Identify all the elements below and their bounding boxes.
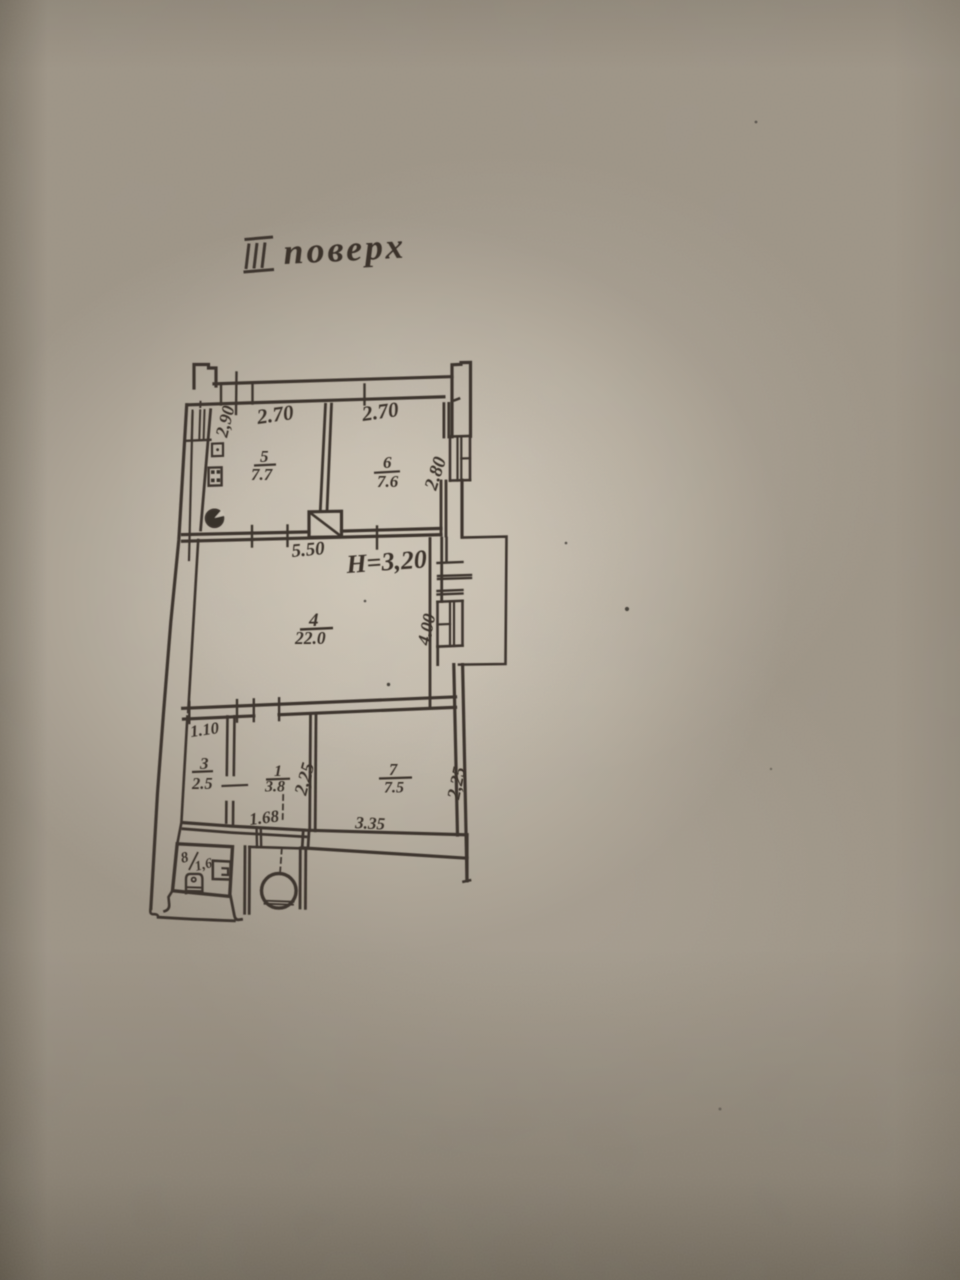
svg-text:1.10: 1.10 (189, 718, 220, 741)
svg-text:7: 7 (389, 760, 398, 779)
svg-text:3: 3 (199, 754, 209, 773)
svg-text:5.50: 5.50 (291, 538, 326, 562)
svg-text:7.5: 7.5 (384, 780, 404, 797)
svg-text:7.6: 7.6 (377, 472, 399, 491)
svg-text:1: 1 (274, 763, 282, 780)
svg-text:5: 5 (260, 447, 269, 466)
svg-text:3.8: 3.8 (264, 779, 285, 796)
svg-text:H=3,20: H=3,20 (344, 544, 427, 579)
svg-text:поверх: поверх (282, 226, 407, 272)
svg-text:7.7: 7.7 (251, 465, 274, 484)
svg-text:3.35: 3.35 (354, 813, 386, 834)
svg-text:22.0: 22.0 (294, 628, 326, 648)
svg-text:6: 6 (383, 453, 392, 472)
svg-text:1.68: 1.68 (248, 806, 280, 829)
svg-text:2.5: 2.5 (191, 774, 213, 793)
